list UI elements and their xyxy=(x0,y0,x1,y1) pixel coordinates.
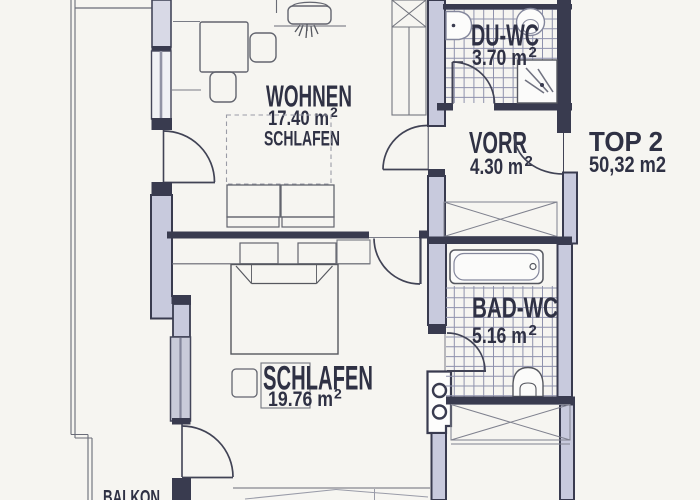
svg-text:3.70 m: 3.70 m xyxy=(472,45,527,70)
svg-text:19.76 m: 19.76 m xyxy=(268,388,333,411)
svg-text:5.16 m: 5.16 m xyxy=(472,323,527,348)
svg-text:2: 2 xyxy=(529,322,537,339)
svg-text:2: 2 xyxy=(529,44,537,61)
svg-text:BAD-WC: BAD-WC xyxy=(472,293,558,325)
svg-text:SCHLAFEN: SCHLAFEN xyxy=(264,128,340,151)
svg-text:2: 2 xyxy=(334,386,342,402)
svg-text:4.30 m: 4.30 m xyxy=(470,154,523,179)
svg-text:BALKON: BALKON xyxy=(103,487,160,500)
svg-text:50,32 m2: 50,32 m2 xyxy=(589,152,666,177)
